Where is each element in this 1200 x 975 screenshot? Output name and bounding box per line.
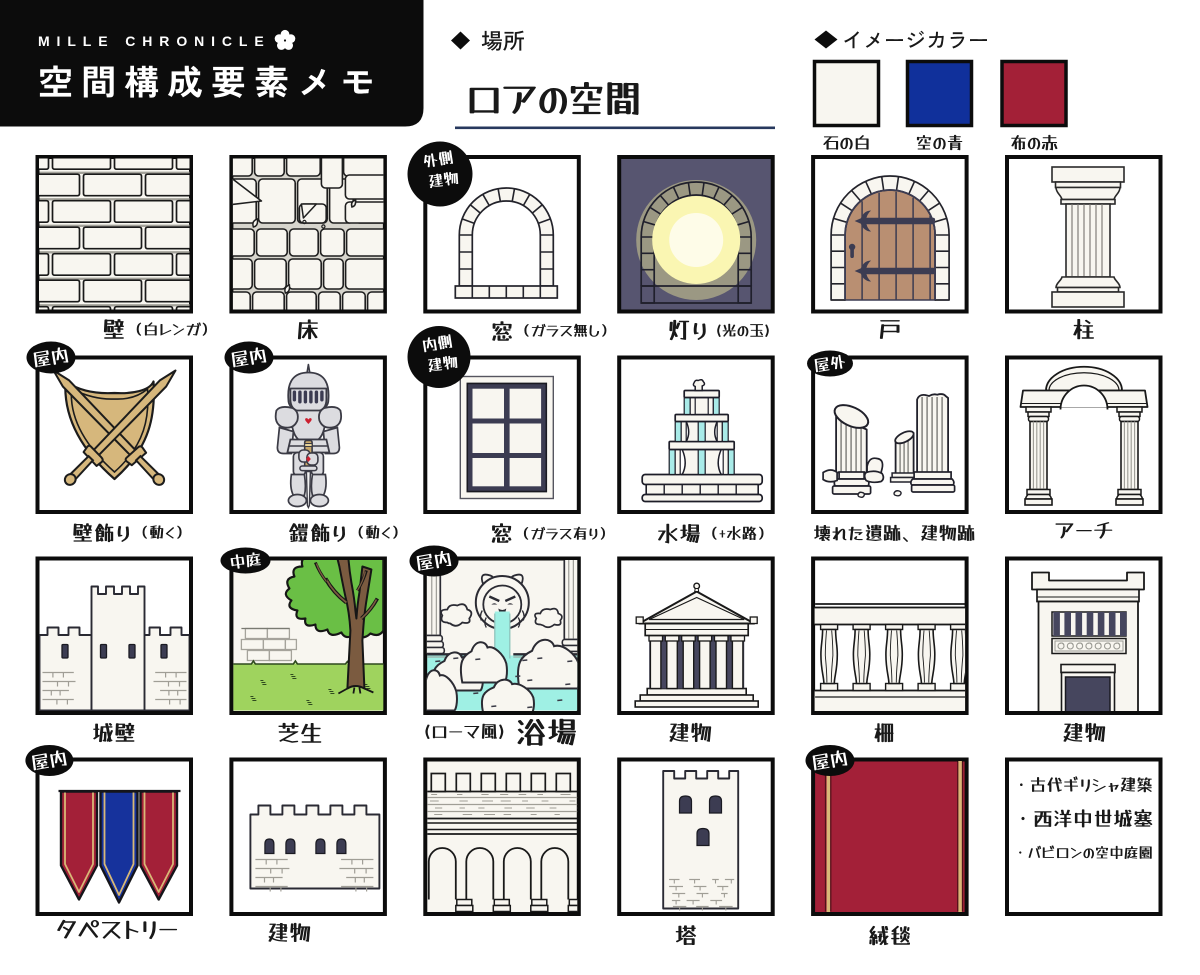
svg-text:MILLE CHRONICLE: MILLE CHRONICLE <box>38 33 271 49</box>
